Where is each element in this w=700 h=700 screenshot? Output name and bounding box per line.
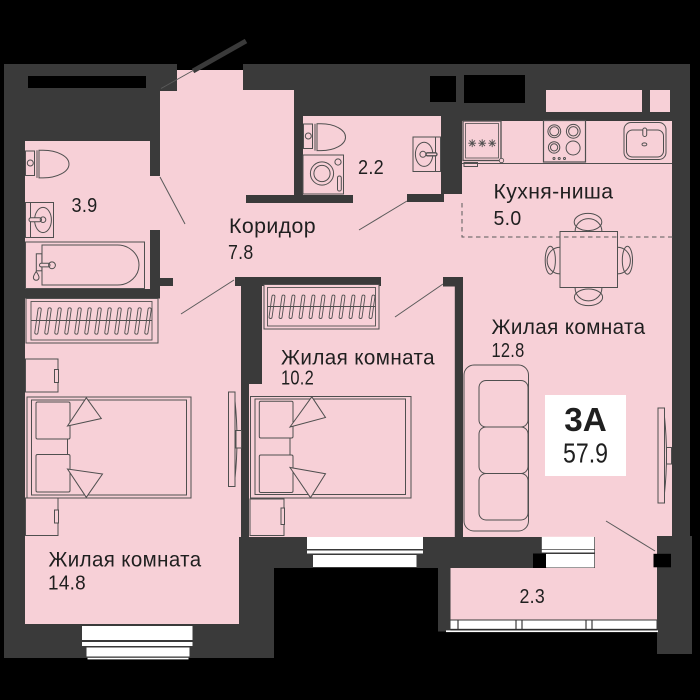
svg-text:3А: 3А xyxy=(564,401,607,438)
svg-text:2.2: 2.2 xyxy=(358,157,384,179)
svg-text:3.9: 3.9 xyxy=(72,195,98,217)
svg-text:14.8: 14.8 xyxy=(48,573,86,595)
svg-text:2.3: 2.3 xyxy=(520,586,546,608)
svg-text:Коридор: Коридор xyxy=(229,215,316,238)
svg-text:Жилая комната: Жилая комната xyxy=(49,549,202,572)
svg-text:Жилая комната: Жилая комната xyxy=(492,316,646,339)
svg-text:7.8: 7.8 xyxy=(228,242,254,264)
svg-text:Кухня-ниша: Кухня-ниша xyxy=(494,181,614,204)
svg-text:5.0: 5.0 xyxy=(494,208,522,230)
svg-text:Жилая комната: Жилая комната xyxy=(281,347,435,370)
svg-text:10.2: 10.2 xyxy=(281,368,314,390)
svg-text:57.9: 57.9 xyxy=(563,438,608,469)
svg-text:12.8: 12.8 xyxy=(492,340,525,362)
